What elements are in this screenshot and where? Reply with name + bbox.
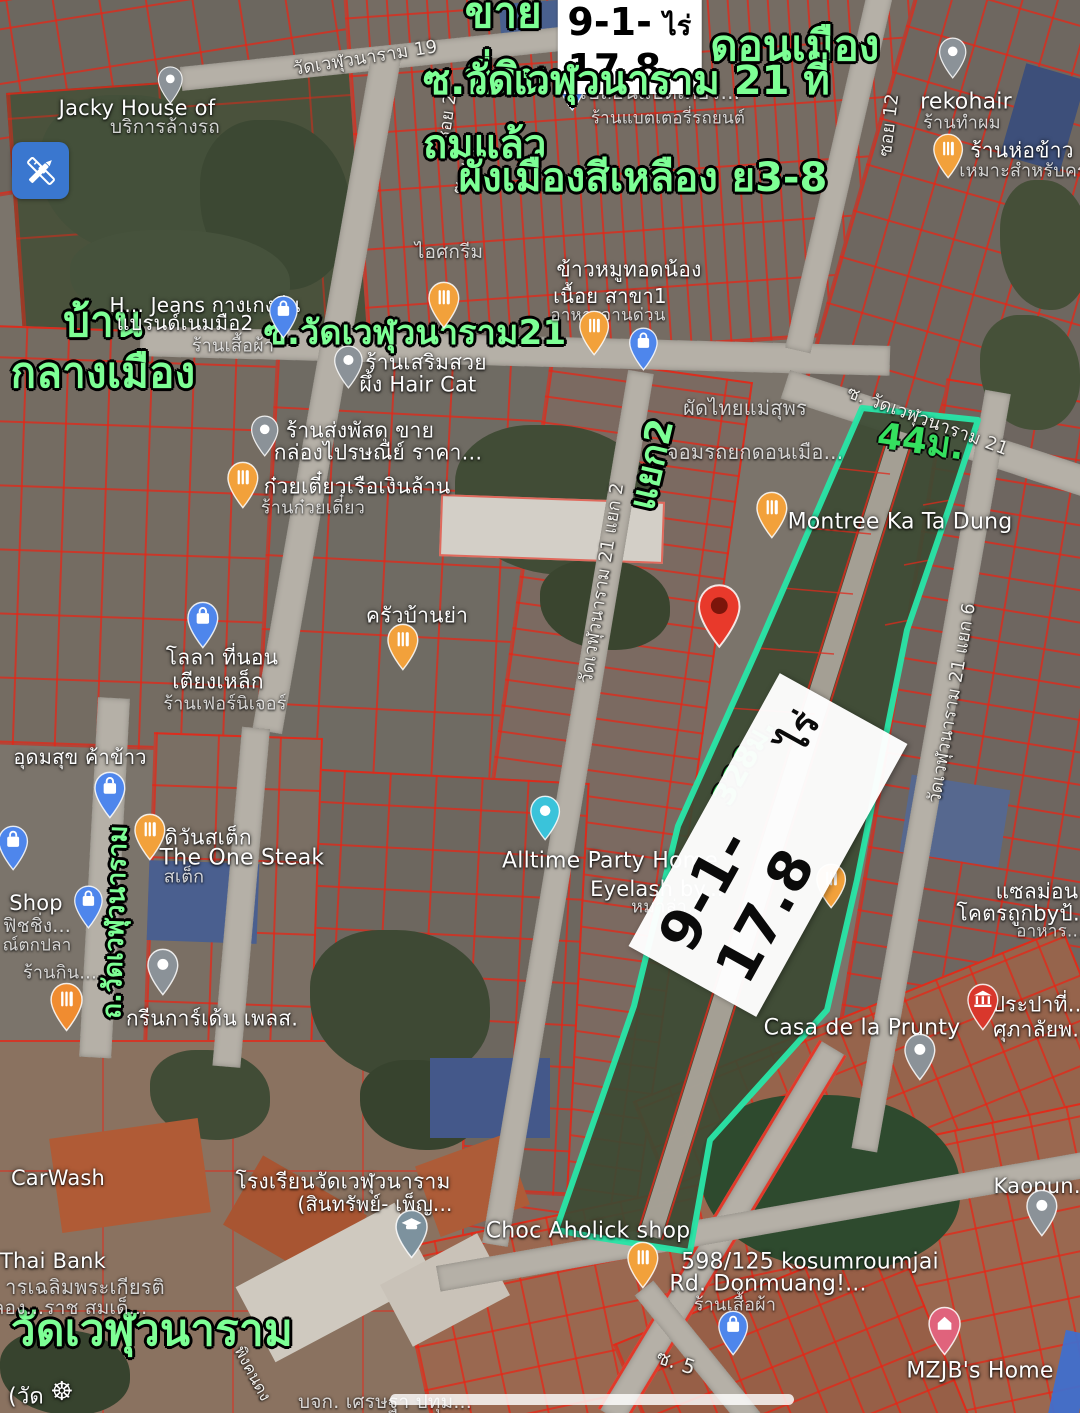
plot-overlay	[0, 0, 1080, 1413]
pin-shop2[interactable]	[72, 884, 105, 934]
pin-porkrice[interactable]	[577, 309, 611, 361]
pin-parcel[interactable]	[249, 414, 280, 462]
poi-steak-3[interactable]: สเต็ก	[164, 862, 205, 891]
poi-carwash[interactable]: CarWash	[11, 1166, 105, 1190]
poi-haircat-2[interactable]: ผึ้ง Hair Cat	[359, 369, 476, 402]
poi-towtruck[interactable]: จอมรถยกดอนเมือ...	[667, 436, 844, 468]
poi-fishing-3[interactable]: ณ์ตกปลา	[2, 932, 71, 959]
poi-padthai[interactable]: ผัดไทยแม่สุพร	[683, 392, 807, 424]
title-area-unit: ไร่	[663, 4, 691, 50]
pin-steak[interactable]	[132, 812, 168, 866]
pin-montree[interactable]	[754, 490, 790, 544]
poi-parcel-2[interactable]: กล่องไปรษณีย์ ราคา...	[274, 437, 482, 470]
pin-greengarden[interactable]	[145, 947, 181, 1001]
pin-riceshop[interactable]	[931, 132, 965, 184]
pin-haircat[interactable]	[332, 344, 365, 394]
poi-thaibank[interactable]: Thai Bank	[0, 1249, 106, 1273]
poi-mzjb[interactable]: MZJB's Home	[906, 1359, 1053, 1384]
poi-lola-3[interactable]: ร้านเฟอร์นิเจอร์	[163, 689, 286, 718]
pin-kruabanya[interactable]	[385, 622, 421, 676]
temple-wheel-icon[interactable]: ☸	[50, 1377, 74, 1407]
scrubber-bar[interactable]	[390, 1394, 794, 1405]
poi-icecream[interactable]: ไอศกรีม	[415, 237, 483, 267]
poi-noodle-2[interactable]: ร้านก๋วยเตี๋ยว	[261, 493, 365, 522]
pin-jeans[interactable]	[267, 294, 300, 344]
pencil-ruler-icon	[19, 149, 63, 193]
poi-wat-partial[interactable]: (วัด	[8, 1379, 44, 1413]
poi-riceshop-2[interactable]: เหมาะสำหรับคร...	[959, 156, 1080, 185]
pin-mzjb[interactable]	[926, 1305, 963, 1361]
pin-balloon[interactable]	[48, 981, 85, 1037]
poi-jeans-3[interactable]: ร้านเสื้อผ้า	[192, 331, 274, 360]
poi-chalerm-2[interactable]: ลอง...ราช สมเด็...	[0, 1293, 147, 1323]
pin-alltime[interactable]	[528, 794, 562, 846]
annotation-klangmueang: กลางเมือง	[11, 340, 196, 406]
pin-choc[interactable]	[625, 1240, 661, 1294]
pin-prapa[interactable]	[965, 982, 1001, 1036]
pin-598[interactable]	[716, 1309, 750, 1361]
pin-school[interactable]	[393, 1208, 430, 1264]
poi-udomsuk[interactable]: อุดมสุข ค้าข้าว	[13, 741, 146, 773]
poi-prapa-2[interactable]: ศุภาลัยพ...	[993, 1014, 1080, 1047]
pin-icecream[interactable]	[426, 280, 462, 334]
poi-montree[interactable]: Montree Ka Ta Dung	[788, 510, 1013, 535]
poi-jacky-2[interactable]: บริการล้างรถ	[110, 112, 220, 142]
edit-button[interactable]	[12, 142, 69, 199]
pin-kaopun[interactable]	[1024, 1188, 1060, 1242]
poi-greengarden[interactable]: กรีนการ์เด้น เพลส.	[126, 1003, 298, 1036]
main-location-pin[interactable]	[695, 582, 744, 654]
satellite-map[interactable]: 44ม. 328ม. 9-1-17.8 ไร่ วัดเวฬุวนาราม 19…	[0, 0, 1080, 1413]
pin-noodle[interactable]	[225, 460, 261, 514]
pin-rekohair[interactable]	[937, 36, 968, 84]
pin-casa[interactable]	[902, 1032, 938, 1086]
pin-soi21-shop[interactable]	[627, 326, 660, 376]
pin-fishing[interactable]	[0, 824, 30, 876]
pin-jacky[interactable]	[156, 65, 185, 109]
pin-lola[interactable]	[185, 600, 221, 654]
title-line3: ผังเมืองสีเหลือง ย3-8	[459, 145, 828, 209]
poi-salmon-3[interactable]: อาหาร...	[1016, 918, 1080, 945]
pin-udomsuk[interactable]	[92, 770, 128, 824]
